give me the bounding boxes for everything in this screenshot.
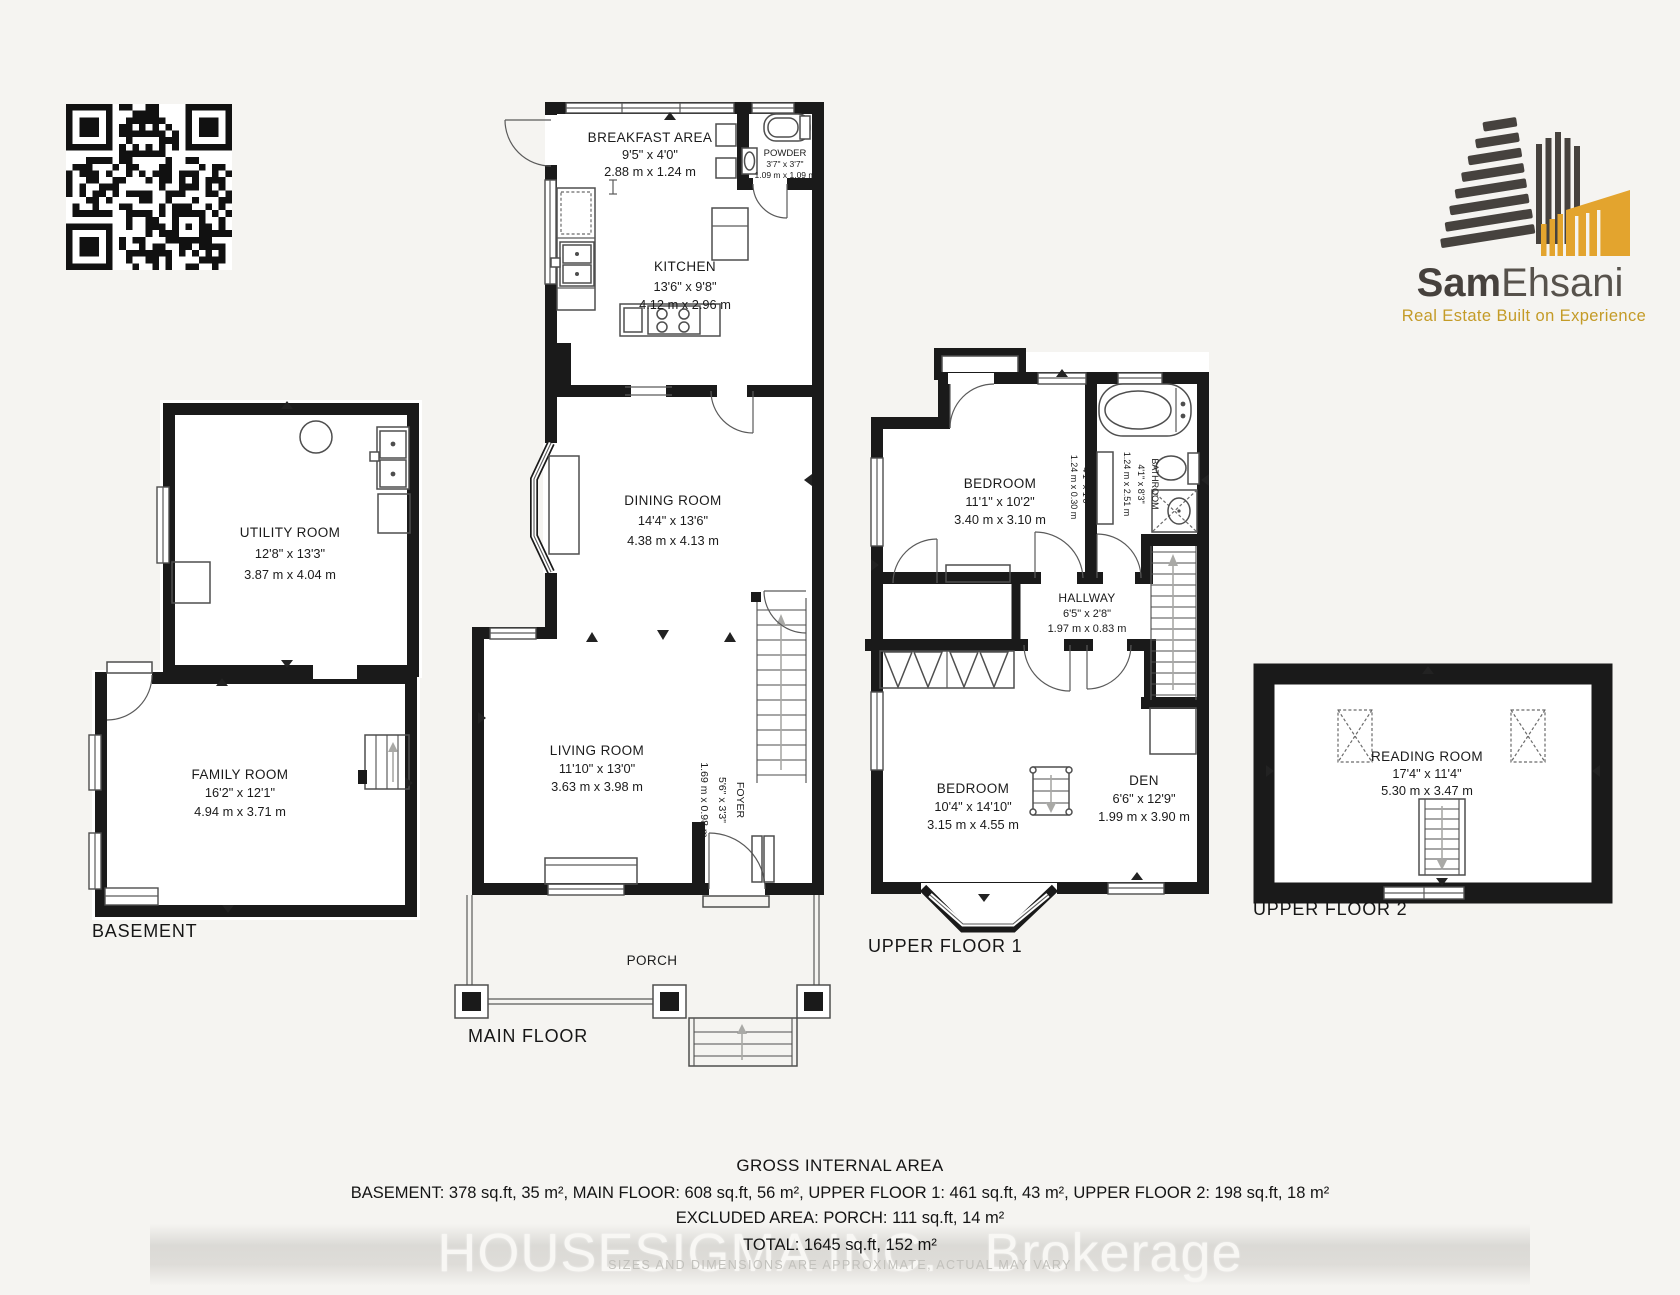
svg-text:BEDROOM: BEDROOM <box>937 781 1010 796</box>
door-leaf <box>107 662 152 673</box>
total-area: TOTAL: 1645 sq.ft, 152 m² <box>0 1236 1680 1255</box>
logo-building-icon <box>1423 117 1630 256</box>
svg-text:14'4" x 13'6": 14'4" x 13'6" <box>638 513 708 528</box>
porch-post <box>653 985 686 1018</box>
svg-text:1.24 m x 2.51 m: 1.24 m x 2.51 m <box>1122 452 1132 517</box>
svg-text:LIVING ROOM: LIVING ROOM <box>550 743 644 758</box>
svg-text:4.38 m x 4.13 m: 4.38 m x 4.13 m <box>627 533 719 548</box>
svg-text:3.40 m x 3.10 m: 3.40 m x 3.10 m <box>954 512 1046 527</box>
svg-text:6'6" x 12'9": 6'6" x 12'9" <box>1112 791 1175 806</box>
svg-text:FAMILY ROOM: FAMILY ROOM <box>192 767 289 782</box>
svg-text:1.24 m x 0.30 m: 1.24 m x 0.30 m <box>1069 455 1079 520</box>
door-arc <box>505 120 551 166</box>
svg-text:BEDROOM: BEDROOM <box>964 476 1037 491</box>
svg-text:17'4" x 11'4": 17'4" x 11'4" <box>1392 766 1461 781</box>
room-bedroom2: BEDROOM 11'1" x 10'2" 3.40 m x 3.10 m <box>954 476 1046 527</box>
svg-text:1.09 m x 1.09 m: 1.09 m x 1.09 m <box>755 170 816 180</box>
svg-text:BREAKFAST AREA: BREAKFAST AREA <box>588 130 713 145</box>
qr-code <box>66 104 232 270</box>
svg-text:3'7" x 3'7": 3'7" x 3'7" <box>766 159 803 169</box>
svg-text:DEN: DEN <box>1129 773 1159 788</box>
svg-text:3.87 m x 4.04 m: 3.87 m x 4.04 m <box>244 567 336 582</box>
logo-tagline: Real Estate Built on Experience <box>1402 307 1646 325</box>
svg-text:3.63 m x 3.98 m: 3.63 m x 3.98 m <box>551 779 643 794</box>
room-bedroom1: BEDROOM 10'4" x 14'10" 3.15 m x 4.55 m <box>927 781 1019 832</box>
room-dining: DINING ROOM 14'4" x 13'6" 4.38 m x 4.13 … <box>624 493 721 548</box>
upper-floor2-floorplan: READING ROOM 17'4" x 11'4" 5.30 m x 3.47… <box>1245 650 1630 930</box>
svg-text:4.12 m x 2.96 m: 4.12 m x 2.96 m <box>639 297 731 312</box>
bathtub-icon <box>1099 384 1191 436</box>
svg-text:READING ROOM: READING ROOM <box>1371 749 1483 764</box>
excluded-area: EXCLUDED AREA: PORCH: 111 sq.ft, 14 m² <box>0 1209 1680 1228</box>
porch-post <box>797 985 830 1018</box>
upper-floor1-floorplan: BEDROOM 11'1" x 10'2" 3.40 m x 3.10 m BA… <box>855 340 1225 965</box>
svg-text:11'10" x 13'0": 11'10" x 13'0" <box>559 761 635 776</box>
svg-text:4'1" x 8'3": 4'1" x 8'3" <box>1136 464 1146 503</box>
svg-text:2.88 m x 1.24 m: 2.88 m x 1.24 m <box>604 164 696 179</box>
threshold <box>703 896 769 907</box>
svg-text:4'1" x 1'0": 4'1" x 1'0" <box>1081 467 1091 506</box>
floorplan-page: SamEhsani Real Estate Built on Experienc… <box>0 0 1680 1295</box>
main-floor-label: MAIN FLOOR <box>468 1026 588 1046</box>
svg-text:UTILITY ROOM: UTILITY ROOM <box>240 525 341 540</box>
svg-text:16'2" x 12'1": 16'2" x 12'1" <box>205 785 275 800</box>
area-breakdown: BASEMENT: 378 sq.ft, 35 m², MAIN FLOOR: … <box>0 1184 1680 1203</box>
svg-text:11'1" x 10'2": 11'1" x 10'2" <box>965 494 1034 509</box>
disclaimer-text: SIZES AND DIMENSIONS ARE APPROXIMATE, AC… <box>0 1258 1680 1272</box>
brokerage-logo: SamEhsani Real Estate Built on Experienc… <box>1378 98 1678 348</box>
room-family: FAMILY ROOM 16'2" x 12'1" 4.94 m x 3.71 … <box>192 767 289 819</box>
window <box>1384 887 1464 899</box>
svg-text:10'4" x 14'10": 10'4" x 14'10" <box>934 799 1011 814</box>
svg-text:5'6" x 3'3": 5'6" x 3'3" <box>716 777 728 823</box>
basement-floorplan: UTILITY ROOM 12'8" x 13'3" 3.87 m x 4.04… <box>85 395 435 955</box>
svg-text:5.30 m x 3.47 m: 5.30 m x 3.47 m <box>1381 783 1473 798</box>
svg-text:4.94 m x 3.71 m: 4.94 m x 3.71 m <box>194 804 286 819</box>
toilet-icon <box>764 114 810 141</box>
closet-hanging-icon <box>880 651 1014 688</box>
svg-text:BATHROOM: BATHROOM <box>1150 458 1160 509</box>
svg-text:POWDER: POWDER <box>764 148 807 159</box>
svg-text:1.97 m x 0.83 m: 1.97 m x 0.83 m <box>1048 623 1127 635</box>
svg-text:FOYER: FOYER <box>734 782 746 819</box>
svg-text:DINING ROOM: DINING ROOM <box>624 493 721 508</box>
svg-text:HALLWAY: HALLWAY <box>1058 591 1115 605</box>
main-floorplan: BREAKFAST AREA 9'5" x 4'0" 2.88 m x 1.24… <box>440 85 845 1060</box>
svg-text:12'8" x 13'3": 12'8" x 13'3" <box>255 546 325 561</box>
porch-post <box>455 985 488 1018</box>
upper-floor2-label: UPPER FLOOR 2 <box>1253 899 1407 919</box>
logo-brand: SamEhsani <box>1417 261 1624 305</box>
basement-label: BASEMENT <box>92 921 197 941</box>
svg-text:9'5" x 4'0": 9'5" x 4'0" <box>622 147 678 162</box>
room-living: LIVING ROOM 11'10" x 13'0" 3.63 m x 3.98… <box>550 743 644 794</box>
porch-label: PORCH <box>627 953 678 968</box>
svg-text:1.69 m x 0.98 m: 1.69 m x 0.98 m <box>698 762 710 838</box>
porch-steps <box>689 1018 797 1066</box>
svg-text:6'5" x 2'8": 6'5" x 2'8" <box>1063 608 1111 620</box>
svg-text:1.99 m x 3.90 m: 1.99 m x 3.90 m <box>1098 809 1190 824</box>
svg-text:13'6" x 9'8": 13'6" x 9'8" <box>653 279 716 294</box>
upper-floor1-label: UPPER FLOOR 1 <box>868 936 1022 956</box>
svg-text:3.15 m x 4.55 m: 3.15 m x 4.55 m <box>927 817 1019 832</box>
gross-area-title: GROSS INTERNAL AREA <box>0 1156 1680 1176</box>
svg-text:KITCHEN: KITCHEN <box>654 259 716 274</box>
